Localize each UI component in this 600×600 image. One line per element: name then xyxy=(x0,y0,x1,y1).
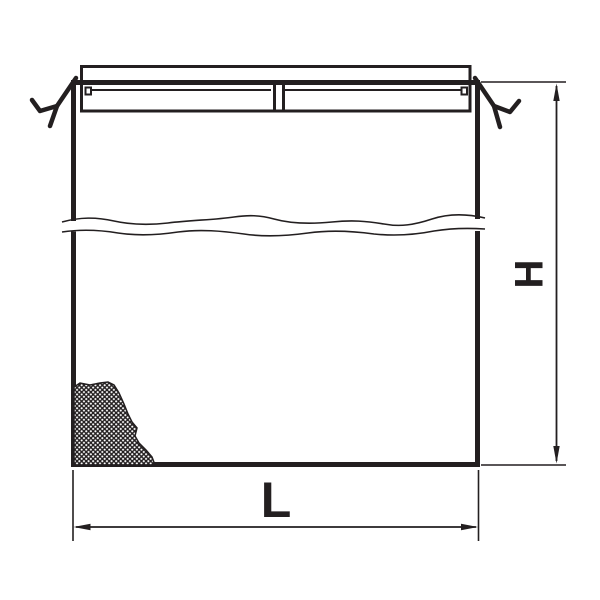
drawstring-left xyxy=(32,78,76,126)
drawing-canvas: H L xyxy=(0,0,600,600)
end-clip-left xyxy=(86,88,92,95)
l-arrowhead-left-icon xyxy=(74,524,91,530)
h-dimension-label: H xyxy=(508,260,552,289)
closure-bar-top-profile xyxy=(82,67,471,83)
break-wave-lower xyxy=(62,228,485,235)
break-wave-upper xyxy=(62,215,485,226)
bag-technical-diagram: H L xyxy=(0,0,600,600)
mesh-texture-patch xyxy=(74,382,155,465)
h-arrowhead-up-icon xyxy=(553,84,559,102)
closure-bar xyxy=(82,67,471,112)
l-arrowhead-right-icon xyxy=(461,524,478,530)
bag-body-outline xyxy=(71,82,480,466)
l-dimension: L xyxy=(73,470,479,541)
l-dimension-label: L xyxy=(261,472,292,528)
fabric-break-lines xyxy=(62,215,485,236)
end-clip-right xyxy=(462,88,468,95)
drawstring-right xyxy=(475,78,519,127)
drawstring-right-branch xyxy=(494,101,519,112)
h-arrowhead-down-icon xyxy=(553,446,559,464)
drawstring-left-branch xyxy=(32,100,57,111)
h-dimension: H xyxy=(481,82,566,465)
